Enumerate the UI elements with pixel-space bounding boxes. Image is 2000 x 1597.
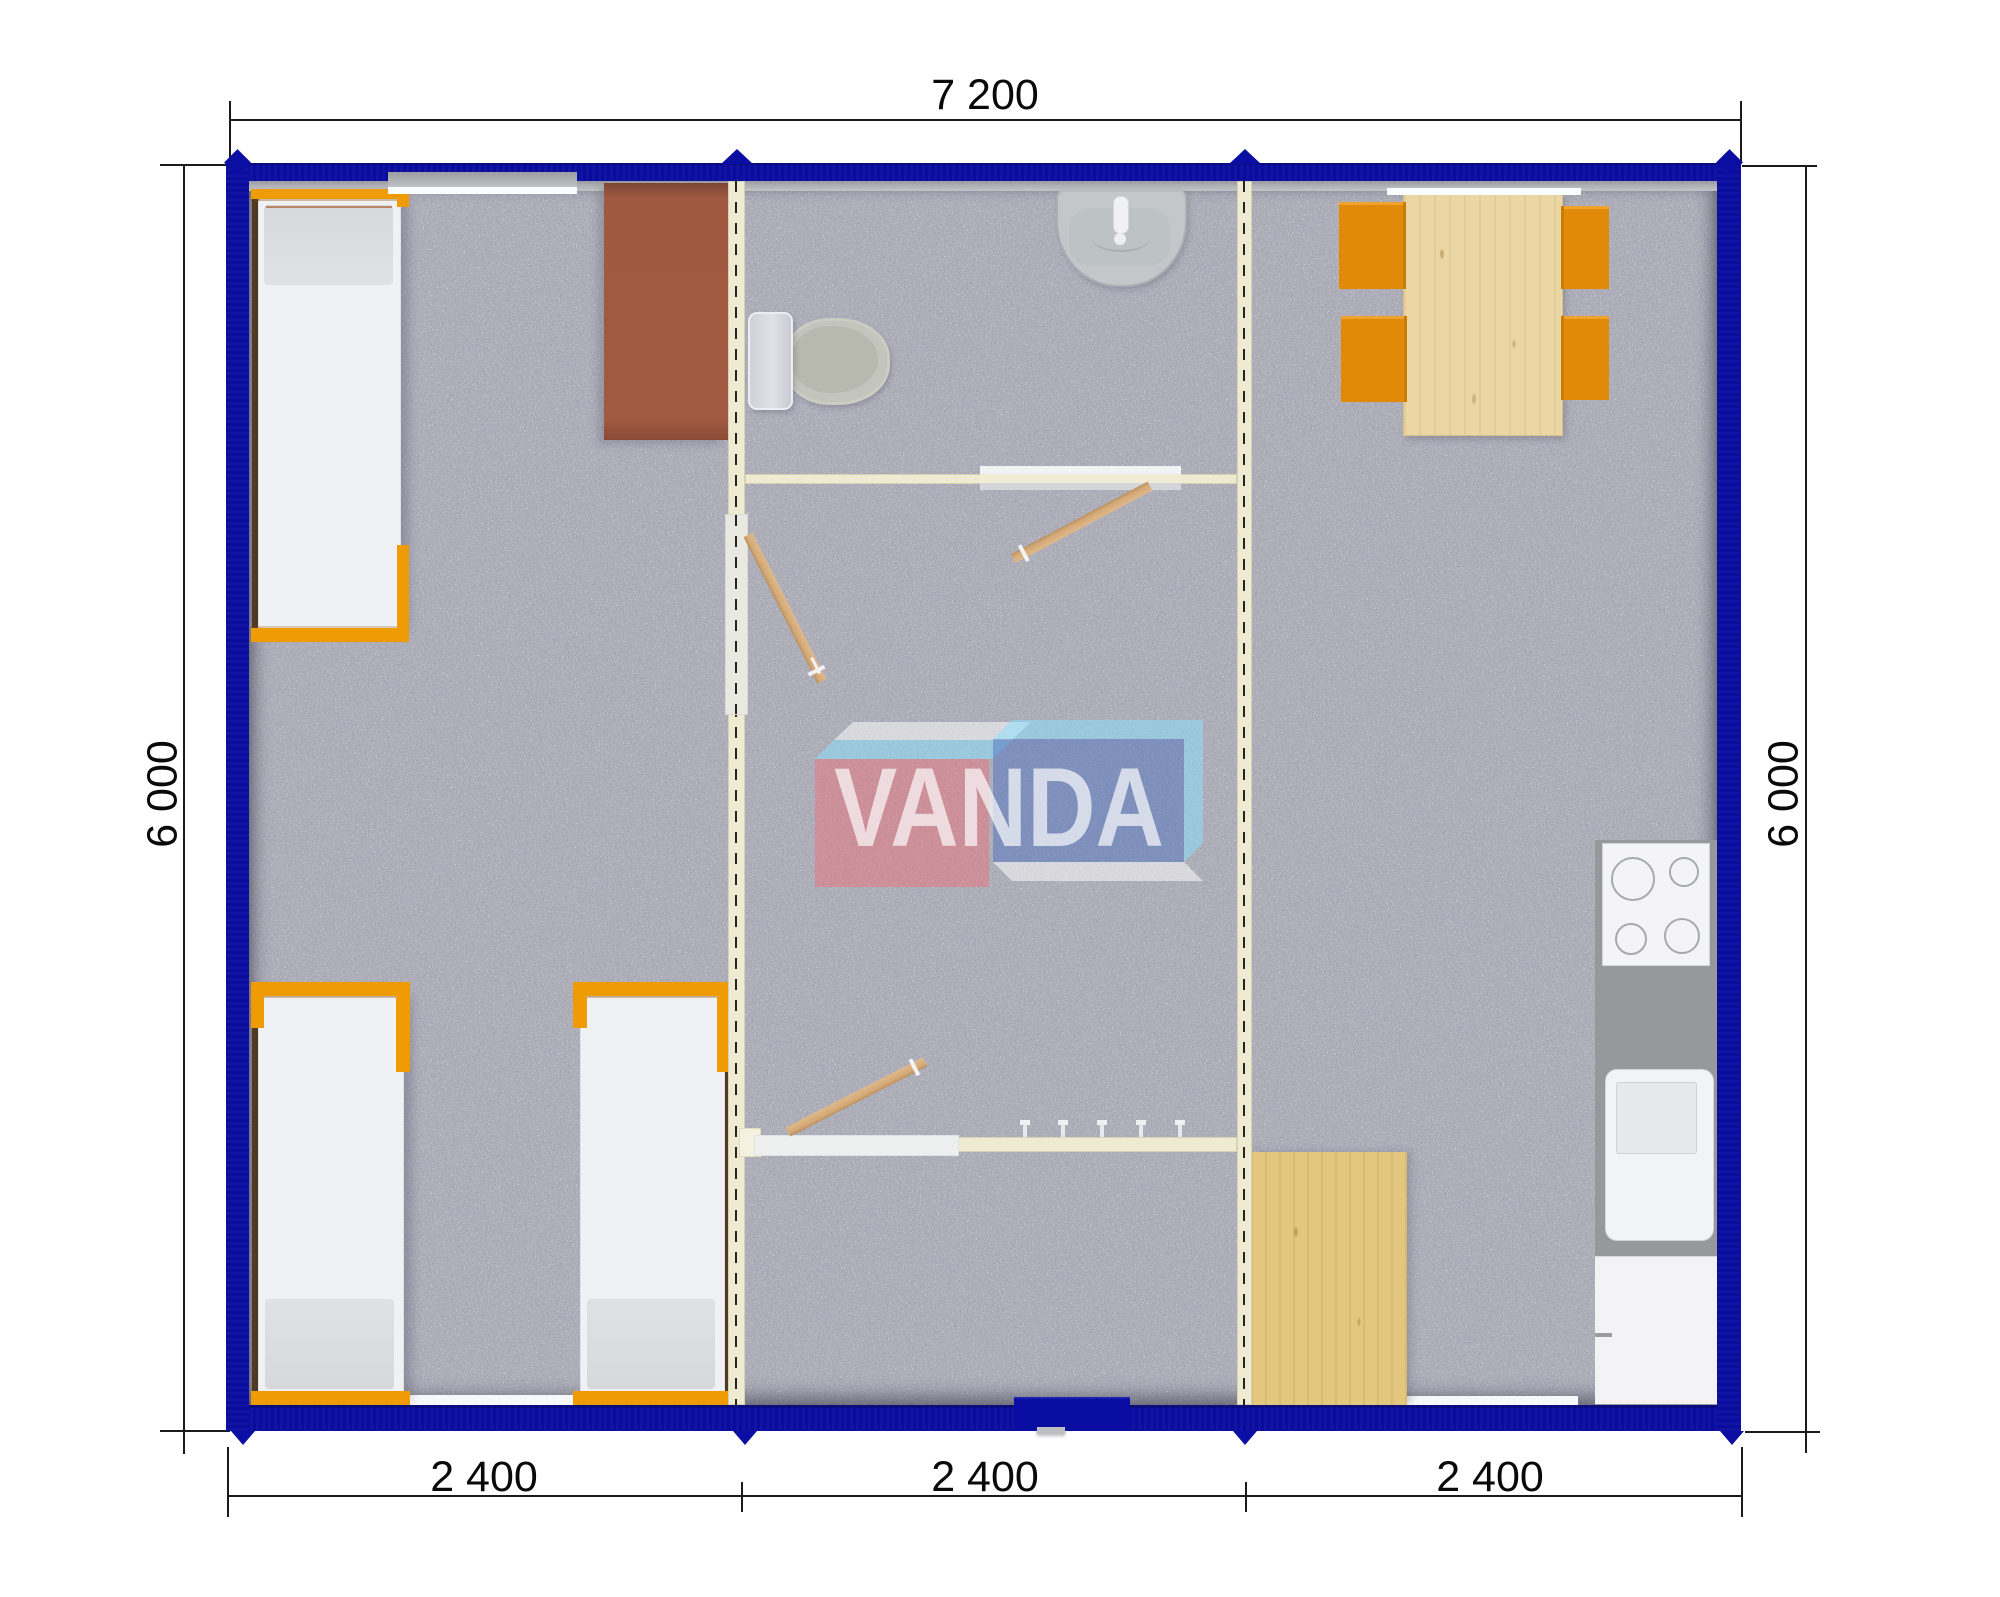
svg-text:VANDA: VANDA bbox=[834, 745, 1164, 870]
